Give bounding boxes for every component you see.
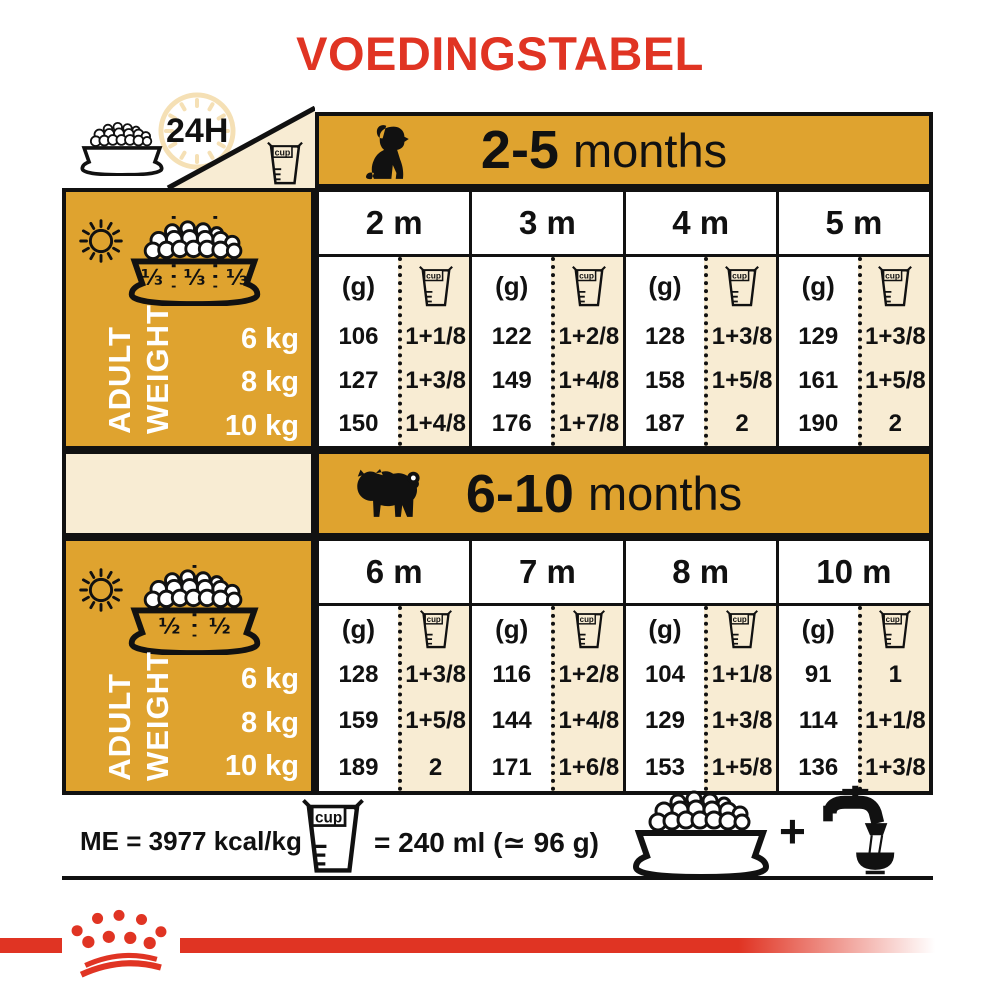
fraction-label: ½ — [209, 615, 231, 640]
gram-value: 161 — [779, 359, 858, 403]
fraction-label: ⅓ — [141, 266, 163, 291]
cup-value: 1+7/8 — [555, 402, 622, 446]
red-band-right — [180, 938, 935, 953]
month-column: 10 m (g) 91 114 136 — [776, 541, 929, 791]
me-label: ME = 3977 kcal/kg — [80, 826, 290, 857]
gram-value: 128 — [319, 652, 398, 698]
months-grid-2-5: 2 m (g) 106 127 150 — [315, 188, 933, 450]
gram-unit-label: (g) — [319, 257, 398, 315]
fraction-label: ⅓ — [184, 266, 206, 291]
month-column: 7 m (g) 116 144 171 — [469, 541, 622, 791]
month-column: 3 m (g) 122 149 176 — [469, 192, 622, 446]
cup-value: 1+4/8 — [555, 359, 622, 403]
month-header: 10 m — [779, 541, 929, 606]
svg-text:cup: cup — [580, 615, 594, 624]
svg-text:cup: cup — [733, 615, 747, 624]
age-unit: months — [573, 127, 727, 174]
svg-text:cup: cup — [886, 615, 900, 624]
age-range: 2-5 — [481, 123, 559, 177]
fraction-label: ½ — [158, 615, 180, 640]
moon-icon — [270, 565, 300, 613]
adult-label: ADULT — [104, 673, 135, 781]
cup-value: 1+3/8 — [708, 315, 775, 359]
cup-unit-icon: cup — [725, 608, 759, 651]
month-column: 5 m (g) 129 161 190 — [776, 192, 929, 446]
cup-value: 1 — [862, 652, 929, 698]
cup-value: 1+1/8 — [862, 698, 929, 744]
cup-value: 1+3/8 — [402, 652, 469, 698]
gram-value: 114 — [779, 698, 858, 744]
month-header: 4 m — [626, 192, 776, 257]
cup-icon: cup — [266, 140, 304, 187]
gram-unit-label: (g) — [472, 606, 551, 652]
gram-value: 129 — [779, 315, 858, 359]
food-bowl-thirds-icon: ⅓ ⅓ ⅓ — [122, 214, 267, 306]
gram-value: 189 — [319, 745, 398, 791]
month-column: 8 m (g) 104 129 153 — [623, 541, 776, 791]
month-column: 2 m (g) 106 127 150 — [319, 192, 469, 446]
cup-value: 1+2/8 — [555, 315, 622, 359]
gram-value: 122 — [472, 315, 551, 359]
cup-value: 1+4/8 — [555, 698, 622, 744]
gram-value: 158 — [626, 359, 705, 403]
gram-value: 159 — [319, 698, 398, 744]
weight-label: WEIGHT — [142, 304, 173, 434]
svg-text:cup: cup — [579, 270, 594, 280]
cup-value: 1+4/8 — [402, 402, 469, 446]
fraction-label: ⅓ — [226, 266, 248, 291]
adult-weight-panel: ½ ½ ADULT WEIGHT 6 kg 8 kg 10 kg — [62, 537, 315, 795]
gram-unit-label: (g) — [472, 257, 551, 315]
svg-text:cup: cup — [275, 147, 291, 157]
cup-unit-icon: cup — [724, 264, 760, 309]
adult-weight-label: ADULT WEIGHT — [104, 645, 173, 781]
gram-value: 104 — [626, 652, 705, 698]
cup-value: 1+2/8 — [555, 652, 622, 698]
gram-value: 187 — [626, 402, 705, 446]
gram-unit-label: (g) — [779, 606, 858, 652]
gram-value: 116 — [472, 652, 551, 698]
royal-canin-crown-logo — [56, 898, 180, 990]
weight-row-label: 10 kg — [189, 750, 299, 783]
cup-value: 1+1/8 — [708, 652, 775, 698]
cup-value: 2 — [862, 402, 929, 446]
cup-unit-icon: cup — [418, 264, 454, 309]
red-band-left — [0, 938, 62, 953]
gram-value: 190 — [779, 402, 858, 446]
puppy-icon — [361, 123, 413, 181]
cup-value: 1+3/8 — [862, 315, 929, 359]
cup-value: 1+1/8 — [402, 315, 469, 359]
plus-sign: + — [779, 808, 806, 854]
gram-value: 128 — [626, 315, 705, 359]
cup-unit-icon: cup — [878, 608, 912, 651]
weight-row-label: 8 kg — [189, 707, 299, 740]
gram-value: 171 — [472, 745, 551, 791]
month-header: 7 m — [472, 541, 622, 606]
gram-value: 144 — [472, 698, 551, 744]
water-tap-icon — [818, 782, 896, 878]
divider-line — [62, 876, 933, 880]
age-range: 6-10 — [466, 467, 574, 521]
section-header-2-5: 2-5 months — [315, 112, 933, 188]
cup-unit-icon: cup — [572, 608, 606, 651]
svg-text:cup: cup — [732, 270, 747, 280]
month-header: 3 m — [472, 192, 622, 257]
weight-label: WEIGHT — [142, 651, 173, 781]
weight-row-label: 6 kg — [189, 323, 299, 356]
section-header-6-10: 6-10 months — [315, 450, 933, 537]
age-unit: months — [588, 470, 742, 517]
page-title: VOEDINGSTABEL — [0, 26, 1000, 81]
svg-text:cup: cup — [426, 615, 440, 624]
gram-unit-label: (g) — [319, 606, 398, 652]
gram-value: 91 — [779, 652, 858, 698]
moon-icon — [270, 216, 300, 264]
months-grid-6-10: 6 m (g) 128 159 189 — [315, 537, 933, 795]
gram-unit-label: (g) — [626, 606, 705, 652]
month-column: 4 m (g) 128 158 187 — [623, 192, 776, 446]
adult-weight-label: ADULT WEIGHT — [104, 298, 173, 434]
cup-icon: cup — [300, 796, 366, 877]
food-bowl-icon — [626, 784, 776, 879]
cup-unit-icon: cup — [419, 608, 453, 651]
cup-value: 1+3/8 — [402, 359, 469, 403]
gram-unit-label: (g) — [626, 257, 705, 315]
cup-equiv-label: = 240 ml (≃ 96 g) — [374, 826, 599, 859]
adult-weight-panel: ⅓ ⅓ ⅓ ADULT WEIGHT 6 kg 8 kg 10 kg — [62, 188, 315, 450]
cup-unit-icon: cup — [571, 264, 607, 309]
weight-row-label: 6 kg — [189, 663, 299, 696]
gram-value: 150 — [319, 402, 398, 446]
weight-row-label: 8 kg — [189, 366, 299, 399]
gram-value: 176 — [472, 402, 551, 446]
cup-value: 2 — [708, 402, 775, 446]
cup-value: 1+6/8 — [555, 745, 622, 791]
cup-value: 1+5/8 — [862, 359, 929, 403]
gram-value: 149 — [472, 359, 551, 403]
cup-unit-icon: cup — [877, 264, 913, 309]
cup-value: 1+5/8 — [708, 359, 775, 403]
svg-text:cup: cup — [426, 270, 441, 280]
spacer-cell — [62, 450, 315, 537]
month-header: 6 m — [319, 541, 469, 606]
gram-value: 106 — [319, 315, 398, 359]
month-column: 6 m (g) 128 159 189 — [319, 541, 469, 791]
weight-row-label: 10 kg — [189, 410, 299, 443]
cup-value: 2 — [402, 745, 469, 791]
gram-value: 129 — [626, 698, 705, 744]
cup-value: 1+5/8 — [402, 698, 469, 744]
pug-icon — [355, 468, 421, 522]
month-header: 2 m — [319, 192, 469, 257]
adult-label: ADULT — [104, 326, 135, 434]
svg-text:cup: cup — [315, 809, 342, 826]
month-header: 5 m — [779, 192, 929, 257]
gram-unit-label: (g) — [779, 257, 858, 315]
cup-value: 1+3/8 — [708, 698, 775, 744]
feeding-table-page: VOEDINGSTABEL 24H cup 2-5 months — [0, 0, 1000, 1000]
gram-value: 127 — [319, 359, 398, 403]
month-header: 8 m — [626, 541, 776, 606]
svg-text:cup: cup — [885, 270, 900, 280]
food-bowl-halves-icon: ½ ½ — [122, 563, 267, 655]
